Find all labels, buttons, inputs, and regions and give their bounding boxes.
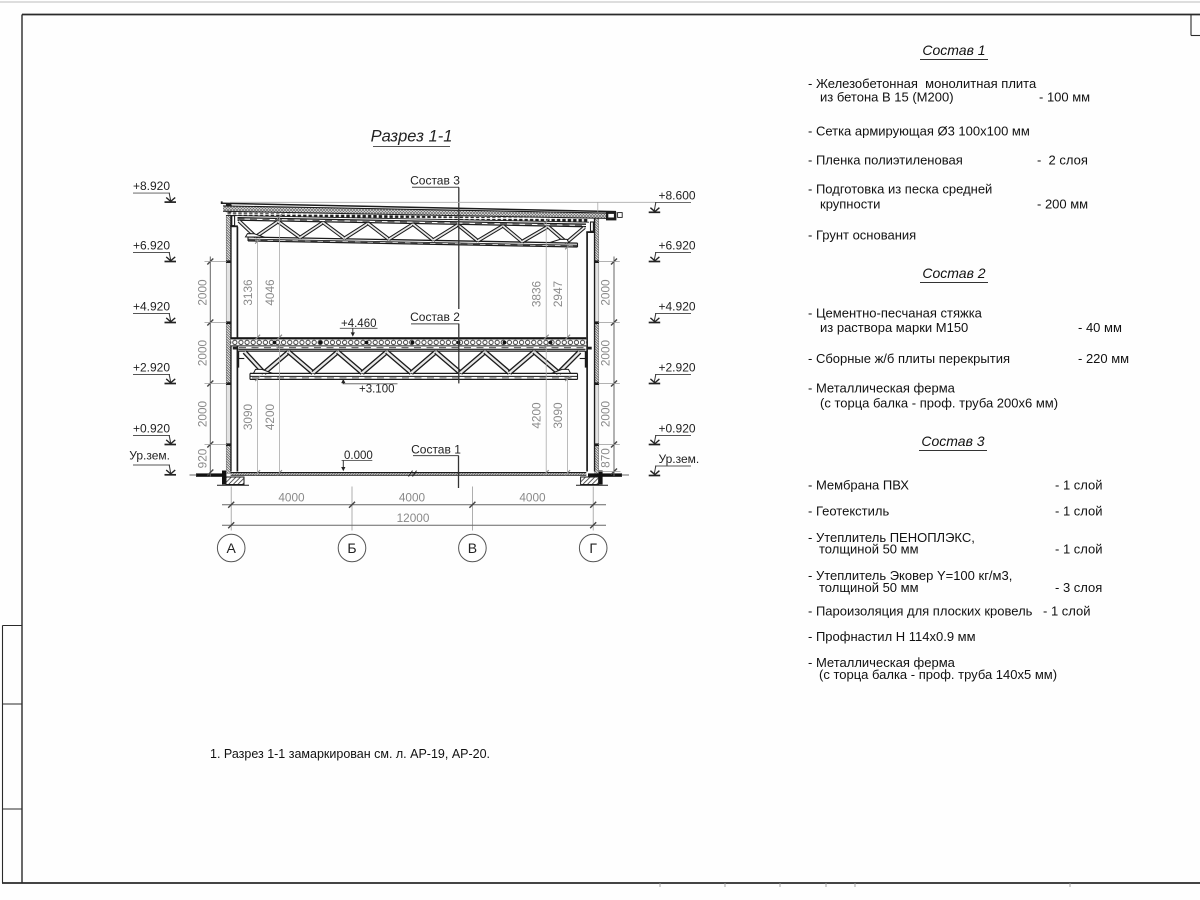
svg-text:Ур.зем.: Ур.зем. [659, 452, 700, 466]
svg-text:- Профнастил Н 114х0.9 мм: - Профнастил Н 114х0.9 мм [808, 629, 976, 644]
svg-text:А: А [227, 540, 237, 556]
svg-text:- Мембрана ПВХ: - Мембрана ПВХ [808, 478, 909, 493]
svg-text:- 200 мм: - 200 мм [1037, 197, 1088, 212]
svg-text:- Пароизоляция для плоских кро: - Пароизоляция для плоских кровель [808, 604, 1033, 619]
svg-text:Состав 3: Состав 3 [921, 433, 984, 449]
svg-text:870: 870 [599, 448, 613, 468]
svg-text:Ур.зем.: Ур.зем. [129, 449, 170, 463]
svg-text:2000: 2000 [196, 400, 210, 427]
svg-text:2000: 2000 [599, 339, 613, 366]
svg-text:Состав 1: Состав 1 [411, 442, 461, 456]
svg-text:- 1 слой: - 1 слой [1055, 504, 1103, 519]
svg-text:+4.920: +4.920 [659, 300, 696, 314]
svg-text:4000: 4000 [278, 491, 305, 505]
svg-text:- Геотекстиль: - Геотекстиль [808, 504, 889, 519]
svg-text:- Подготовка из песка средней: - Подготовка из песка средней [808, 182, 992, 197]
svg-text:+8.920: +8.920 [133, 179, 170, 193]
svg-text:+0.920: +0.920 [133, 422, 170, 436]
svg-text:- Сборные ж/б плиты перекрытия: - Сборные ж/б плиты перекрытия [808, 351, 1010, 366]
svg-text:3836: 3836 [530, 280, 544, 307]
svg-text:- Пленка полиэтиленовая: - Пленка полиэтиленовая [808, 153, 963, 168]
svg-text:- Сетка армирующая Ø3 100х100: - Сетка армирующая Ø3 100х100 мм [808, 124, 1030, 139]
svg-text:В: В [468, 540, 477, 556]
svg-text:из бетона В 15 (М200): из бетона В 15 (М200) [820, 90, 954, 105]
svg-text:3136: 3136 [241, 279, 255, 306]
svg-text:3090: 3090 [241, 403, 255, 430]
svg-text:толщиной 50 мм: толщиной 50 мм [819, 542, 919, 557]
svg-text:- 100 мм: - 100 мм [1039, 90, 1090, 105]
svg-text:Состав 3: Состав 3 [410, 174, 460, 188]
svg-text:+6.920: +6.920 [659, 239, 696, 253]
svg-text:Разрез 1-1: Разрез 1-1 [371, 128, 453, 146]
svg-text:Состав 1: Состав 1 [922, 42, 985, 58]
svg-text:Состав 2: Состав 2 [922, 265, 985, 281]
svg-text:Г: Г [589, 540, 597, 556]
svg-text:- 40 мм: - 40 мм [1078, 320, 1122, 335]
svg-text:- Цементно-песчаная стяжка: - Цементно-песчаная стяжка [808, 306, 983, 321]
svg-text:+4.920: +4.920 [133, 300, 170, 314]
svg-text:из раствора марки М150: из раствора марки М150 [820, 320, 968, 335]
svg-text:- 1 слой: - 1 слой [1043, 604, 1091, 619]
svg-text:(с торца балка - проф. труба 1: (с торца балка - проф. труба 140х5 мм) [819, 667, 1057, 682]
svg-text:- 1 слой: - 1 слой [1055, 478, 1103, 493]
svg-text:4200: 4200 [263, 403, 277, 430]
svg-text:+2.920: +2.920 [133, 361, 170, 375]
svg-text:12000: 12000 [397, 511, 430, 525]
svg-text:4200: 4200 [530, 402, 544, 429]
svg-text:- Металлическая ферма: - Металлическая ферма [808, 381, 956, 396]
svg-text:4000: 4000 [519, 491, 546, 505]
svg-text:- 3 слоя: - 3 слоя [1055, 580, 1102, 595]
svg-text:2000: 2000 [599, 279, 613, 306]
svg-text:3090: 3090 [551, 402, 565, 429]
svg-text:920: 920 [196, 448, 210, 468]
svg-text:2000: 2000 [599, 400, 613, 427]
svg-text:Состав 2: Состав 2 [410, 310, 460, 324]
svg-text:2000: 2000 [196, 279, 210, 306]
svg-text:(с торца балка - проф. труба 2: (с торца балка - проф. труба 200х6 мм) [820, 396, 1058, 411]
svg-text:+2.920: +2.920 [659, 361, 696, 375]
svg-text:+8.600: +8.600 [659, 188, 696, 202]
svg-text:4046: 4046 [263, 279, 277, 306]
svg-text:- 2 слоя: - 2 слоя [1037, 153, 1088, 168]
svg-text:- 1 слой: - 1 слой [1055, 542, 1103, 557]
svg-text:+3.100: +3.100 [359, 384, 395, 396]
svg-text:Б: Б [347, 540, 356, 556]
svg-text:2947: 2947 [551, 281, 565, 307]
svg-text:4000: 4000 [399, 491, 426, 505]
svg-text:2000: 2000 [196, 339, 210, 366]
svg-text:крупности: крупности [820, 197, 880, 212]
svg-text:толщиной 50 мм: толщиной 50 мм [819, 580, 919, 595]
svg-text:+0.920: +0.920 [659, 422, 696, 436]
svg-text:1. Разрез 1-1 замаркирован см.: 1. Разрез 1-1 замаркирован см. л. АР-19,… [210, 747, 490, 761]
svg-text:- 220 мм: - 220 мм [1078, 351, 1129, 366]
svg-text:- Грунт основания: - Грунт основания [808, 228, 916, 243]
svg-text:+6.920: +6.920 [133, 239, 170, 253]
